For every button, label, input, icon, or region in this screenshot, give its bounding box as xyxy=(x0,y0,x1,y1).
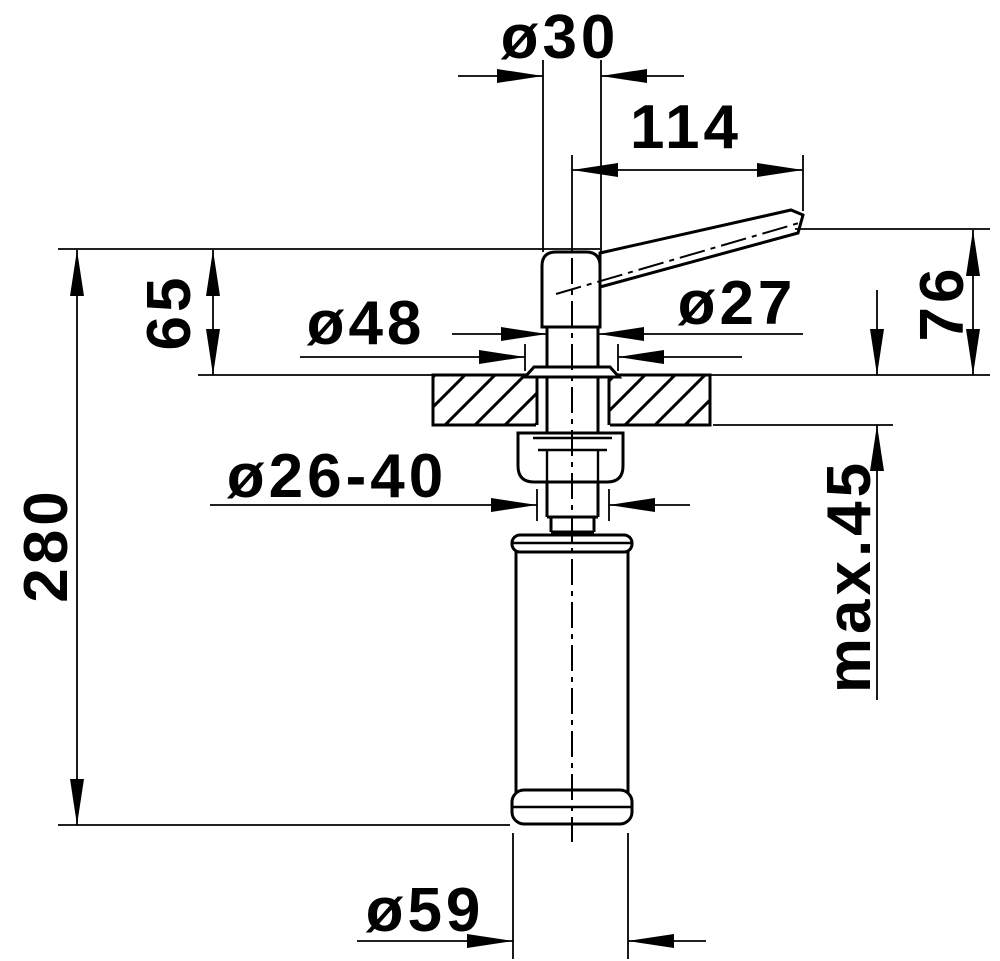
label-spout-reach: 114 xyxy=(630,93,742,162)
dimension-labels: ø30 114 65 ø48 ø27 76 280 ø26-40 max.45 … xyxy=(12,3,977,945)
label-spout-height: 76 xyxy=(908,265,977,342)
label-head-diameter: ø30 xyxy=(501,3,620,72)
label-shaft-diameter: ø27 xyxy=(678,269,797,338)
drawing-canvas: ø30 114 65 ø48 ø27 76 280 ø26-40 max.45 … xyxy=(0,0,1000,961)
label-max-counter-thickness: max.45 xyxy=(815,459,884,693)
label-total-height: 280 xyxy=(12,487,81,602)
soap-dispenser-dimension-drawing: ø30 114 65 ø48 ø27 76 280 ø26-40 max.45 … xyxy=(0,0,1000,961)
label-hole-diameter: ø26-40 xyxy=(227,442,447,511)
label-height-above-counter: 65 xyxy=(135,274,204,351)
label-flange-diameter: ø48 xyxy=(307,289,426,358)
fastening-nut xyxy=(518,433,623,482)
label-bottle-diameter: ø59 xyxy=(366,876,485,945)
